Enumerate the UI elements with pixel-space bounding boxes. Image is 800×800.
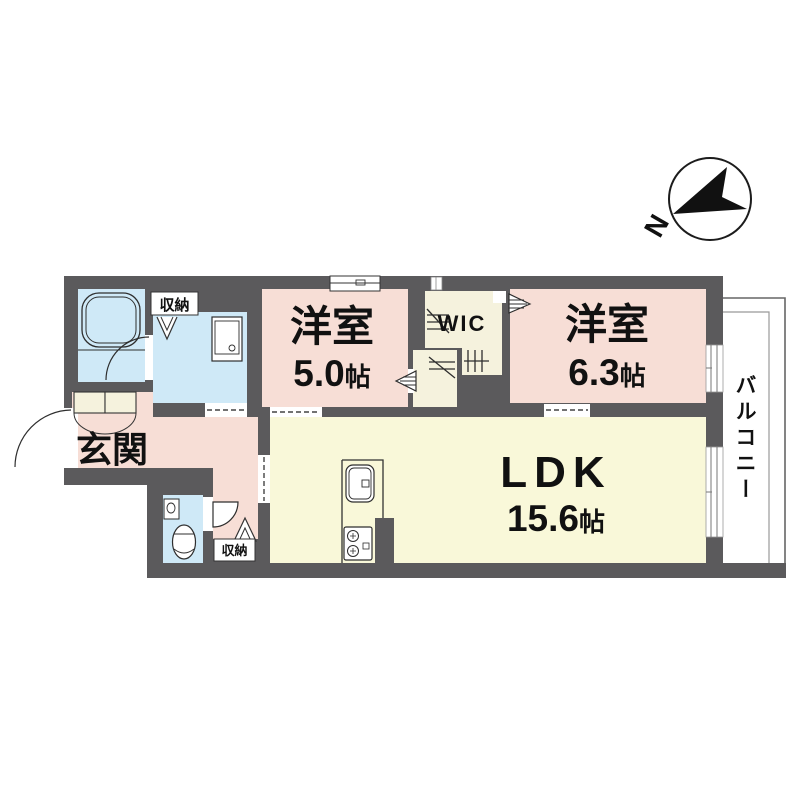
exterior-notch: [64, 485, 147, 578]
wic-name: WIC: [438, 311, 487, 336]
ldk-area-value: 15.6: [507, 498, 579, 539]
bedroom-large-name: 洋室: [565, 301, 649, 348]
compass: N: [638, 158, 751, 242]
bedroom-large-sliding-door: [544, 404, 590, 417]
bedroom-large-area-unit: 帖: [620, 361, 646, 391]
pipe-space: [431, 277, 442, 290]
ldk-area-unit: 帖: [579, 507, 605, 537]
balcony-label: バルコニー: [731, 354, 757, 524]
kitchen-sink-outer: [346, 465, 374, 502]
floor-plan-page: 収納 収納: [0, 0, 800, 800]
pipe-space-box: [431, 277, 442, 290]
bedroom-large-area-value: 6.3: [568, 352, 619, 393]
ldk-sliding-gap: [258, 455, 270, 503]
ldk-name: LDK: [500, 448, 611, 497]
ldk-floor: [270, 417, 706, 563]
bedroom-small-sliding-door: [270, 407, 322, 417]
ldk-sliding-door: [258, 455, 270, 503]
compass-north-label: N: [638, 209, 675, 242]
shoe-cabinet-left: [74, 392, 105, 413]
toilet-basin-box: [164, 499, 179, 519]
toilet-bowl: [173, 525, 196, 559]
wic-door-gap: [493, 291, 506, 303]
closet-floor: [413, 350, 457, 407]
kitchen-stove: [344, 527, 372, 560]
entrance-name: 玄関: [76, 429, 148, 470]
bedroom-small-area-unit: 帖: [345, 362, 371, 392]
entrance-door-arc: [15, 410, 71, 467]
washroom-sliding-door: [205, 403, 247, 417]
storage-upper-label: 収納: [159, 296, 189, 314]
toilet-door-gap: [203, 497, 213, 531]
storage-lower-label: 収納: [221, 543, 247, 558]
bathroom-door-gap: [145, 335, 153, 380]
vanity-sink: [212, 317, 242, 361]
shoe-cabinet-right: [105, 392, 136, 413]
bedroom-small-area-value: 5.0: [293, 353, 344, 394]
kitchen-wall-stub: [375, 518, 394, 563]
bedroom-large-balcony-window: [706, 345, 723, 392]
floor-plan-drawing: 収納 収納: [0, 0, 800, 800]
kitchen-faucet: [362, 480, 369, 487]
bedroom-small-name: 洋室: [290, 303, 374, 350]
ldk-balcony-window: [706, 447, 723, 537]
entrance-door: [15, 408, 78, 468]
bedroom-small-window: [330, 276, 380, 291]
wall-bottom-under-balcony: [723, 563, 786, 578]
